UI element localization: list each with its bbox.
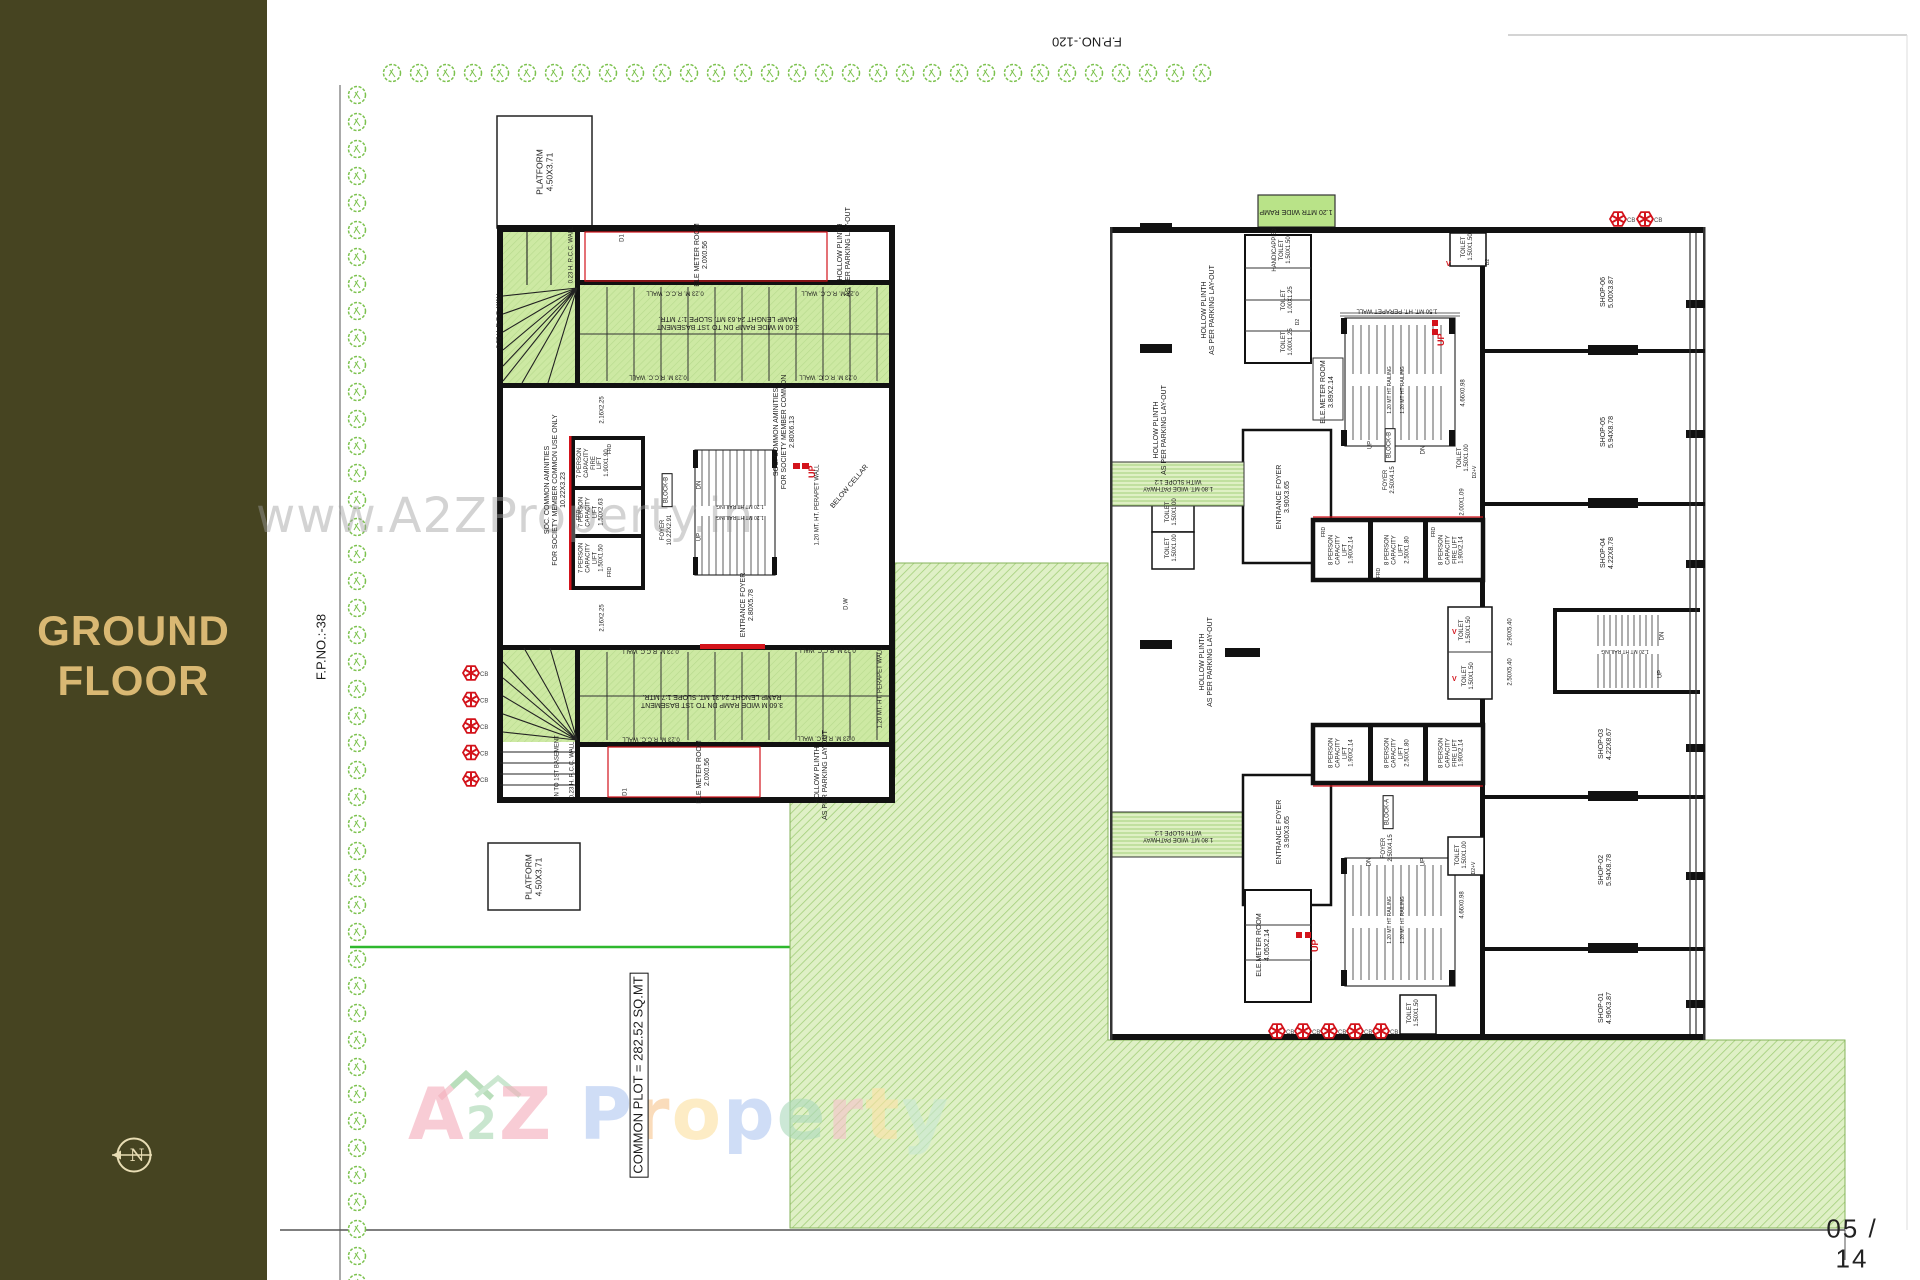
entrance-foyer-bottom (1243, 775, 1331, 905)
right-building: UP UP V V V (1110, 195, 1706, 1040)
svg-text:UP: UP (1436, 333, 1446, 346)
brand-letter: p (723, 1072, 777, 1156)
pathway-strip-top (1112, 462, 1244, 506)
brand-letter: r (634, 1072, 672, 1156)
brand-letter: P (579, 1072, 634, 1156)
pathway-strip-bottom (1112, 812, 1244, 857)
svg-text:V: V (1452, 676, 1457, 683)
brand-letter: A (408, 1072, 466, 1156)
brand-letter: o (672, 1072, 723, 1156)
brand-letter: t (865, 1072, 901, 1156)
brand-letter: 2 (466, 1097, 499, 1150)
floor-plan-drawing: CB (0, 0, 1920, 1280)
toilet-cluster-top (1245, 235, 1311, 363)
svg-text:UP: UP (807, 465, 817, 478)
svg-text:V: V (1452, 629, 1457, 636)
brand-letter: r (827, 1072, 865, 1156)
lift-bank-top (1313, 520, 1483, 580)
ramp-box (1258, 195, 1335, 227)
tree-row-top (384, 65, 1211, 82)
brand-letter: e (777, 1072, 828, 1156)
brand-letter: Z (499, 1072, 553, 1156)
cb-column-left (463, 666, 488, 786)
brand-letter: y (901, 1072, 950, 1156)
tree-column-left (349, 87, 366, 1280)
watermark-url: www.A2ZProperty.in (256, 488, 754, 544)
toilet-center (1448, 607, 1492, 699)
toilet-cluster-bottom (1245, 890, 1311, 1002)
lift-bank-bottom (1313, 725, 1483, 783)
svg-text:UP: UP (1310, 939, 1320, 952)
cb-pair-top-right (1610, 212, 1662, 226)
svg-text:V: V (1446, 261, 1451, 268)
floor-plan-page: CB (0, 0, 1920, 1280)
watermark-brand: A2ZProperty (408, 1072, 950, 1156)
